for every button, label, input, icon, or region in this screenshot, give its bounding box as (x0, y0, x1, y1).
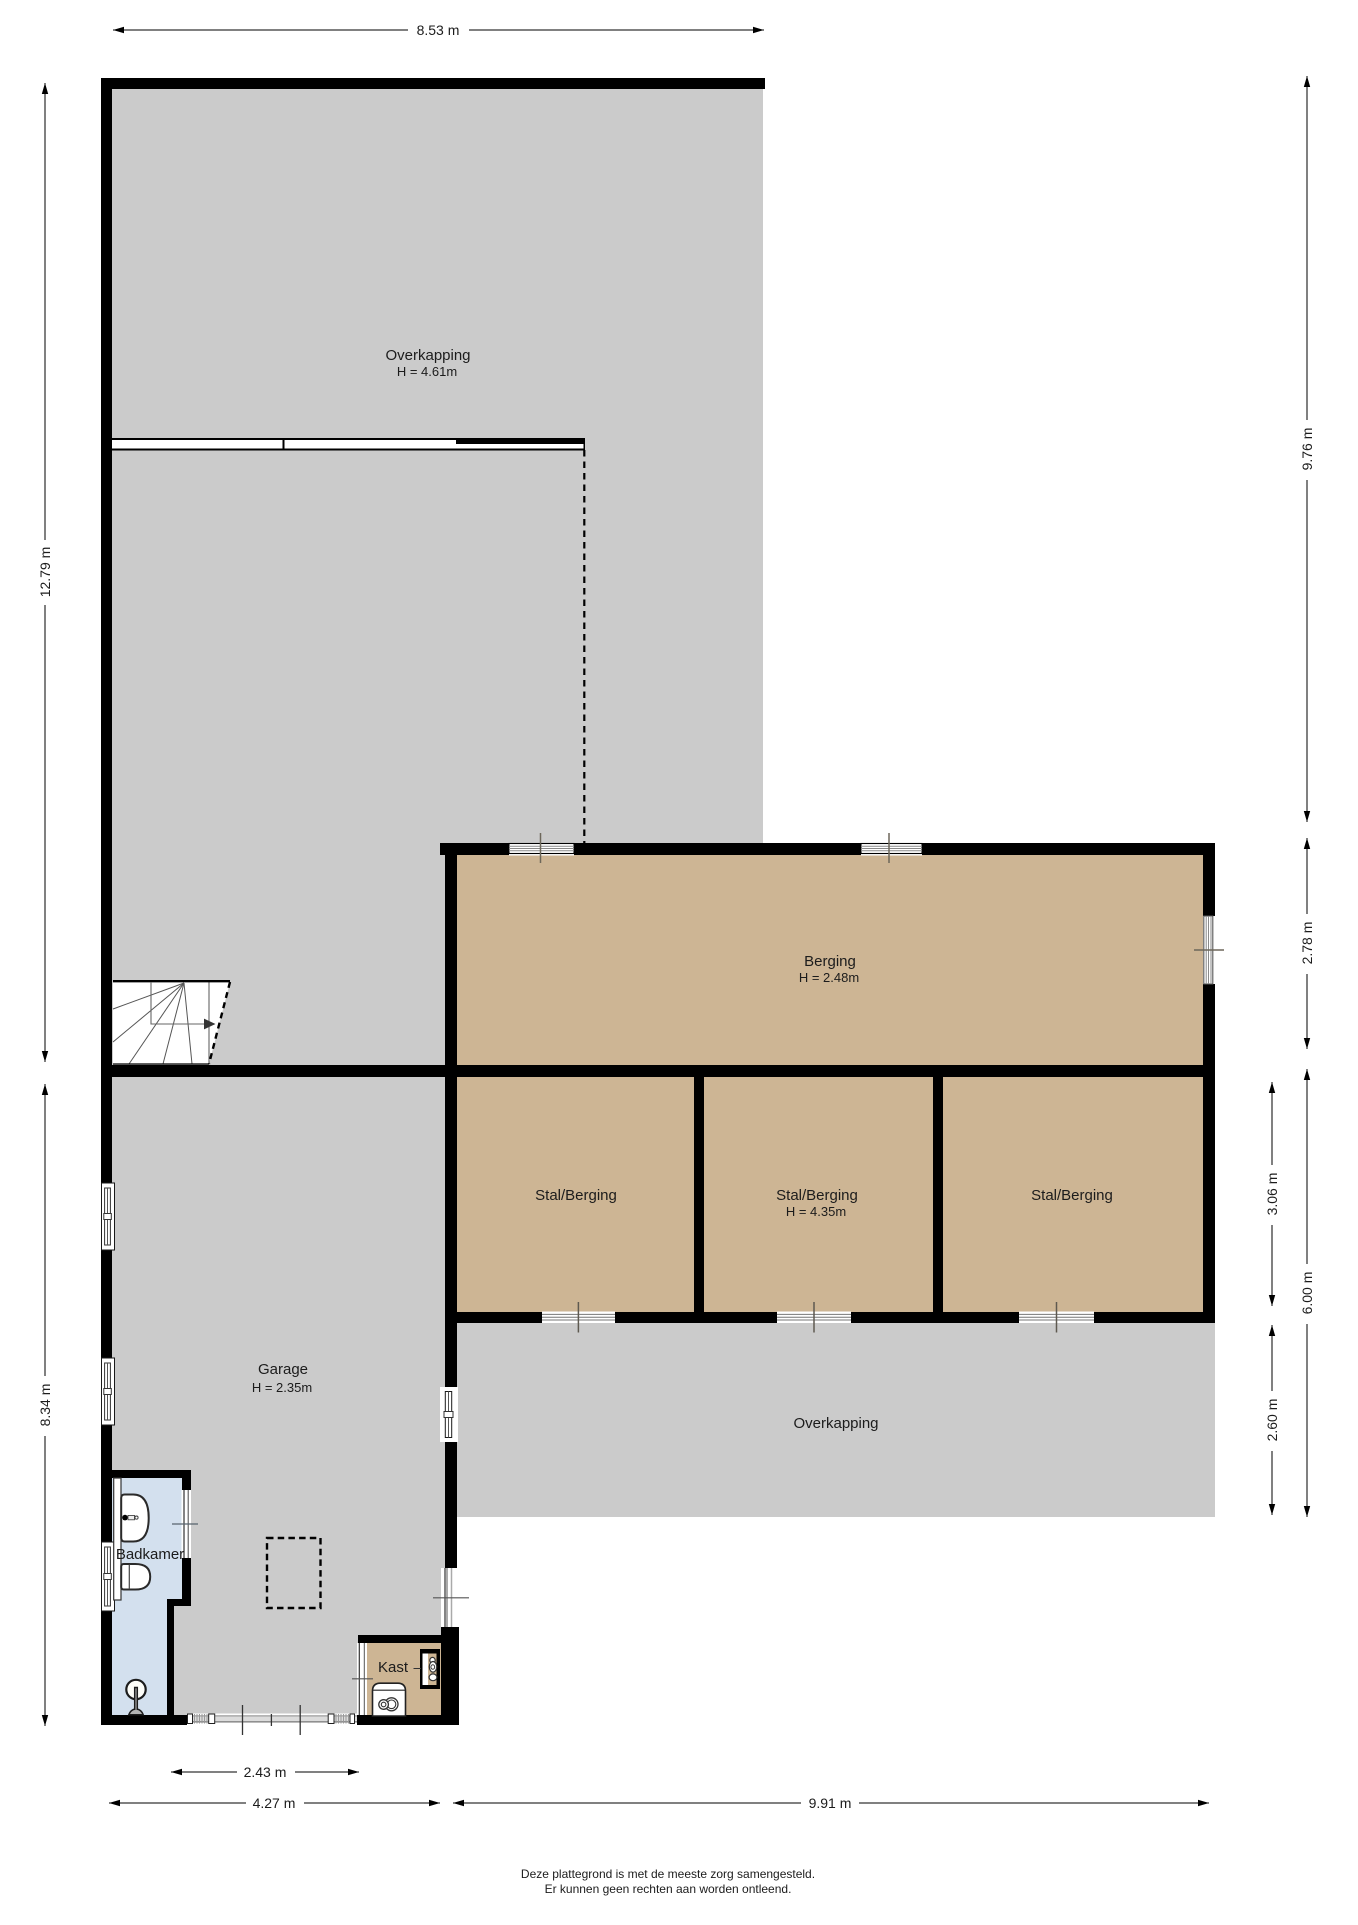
svg-text:Overkapping: Overkapping (793, 1415, 878, 1432)
svg-text:4.27 m: 4.27 m (253, 1795, 296, 1811)
svg-text:8.53 m: 8.53 m (417, 22, 460, 38)
svg-text:Stal/Berging: Stal/Berging (1031, 1187, 1113, 1204)
svg-text:12.79 m: 12.79 m (37, 547, 53, 598)
svg-text:Berging: Berging (804, 953, 856, 970)
svg-text:2.60 m: 2.60 m (1264, 1399, 1280, 1442)
svg-text:H = 4.35m: H = 4.35m (786, 1204, 846, 1219)
svg-text:Overkapping: Overkapping (385, 347, 470, 364)
svg-text:H = 4.61m: H = 4.61m (397, 364, 457, 379)
svg-text:H = 2.48m: H = 2.48m (799, 970, 859, 985)
svg-text:9.76 m: 9.76 m (1299, 428, 1315, 471)
svg-text:Kast: Kast (378, 1659, 409, 1676)
svg-text:Garage: Garage (258, 1361, 308, 1378)
svg-text:8.34 m: 8.34 m (37, 1384, 53, 1427)
svg-text:Stal/Berging: Stal/Berging (535, 1187, 617, 1204)
svg-text:9.91 m: 9.91 m (809, 1795, 852, 1811)
svg-text:Deze plattegrond is met de mee: Deze plattegrond is met de meeste zorg s… (521, 1867, 815, 1881)
svg-text:2.43 m: 2.43 m (244, 1764, 287, 1780)
svg-text:3.06 m: 3.06 m (1264, 1173, 1280, 1216)
svg-text:Stal/Berging: Stal/Berging (776, 1187, 858, 1204)
svg-text:Badkamer: Badkamer (116, 1546, 184, 1563)
svg-text:Er kunnen geen rechten aan wor: Er kunnen geen rechten aan worden ontlee… (545, 1882, 792, 1896)
svg-text:2.78 m: 2.78 m (1299, 922, 1315, 965)
svg-text:6.00 m: 6.00 m (1299, 1272, 1315, 1315)
svg-text:H = 2.35m: H = 2.35m (252, 1380, 312, 1395)
